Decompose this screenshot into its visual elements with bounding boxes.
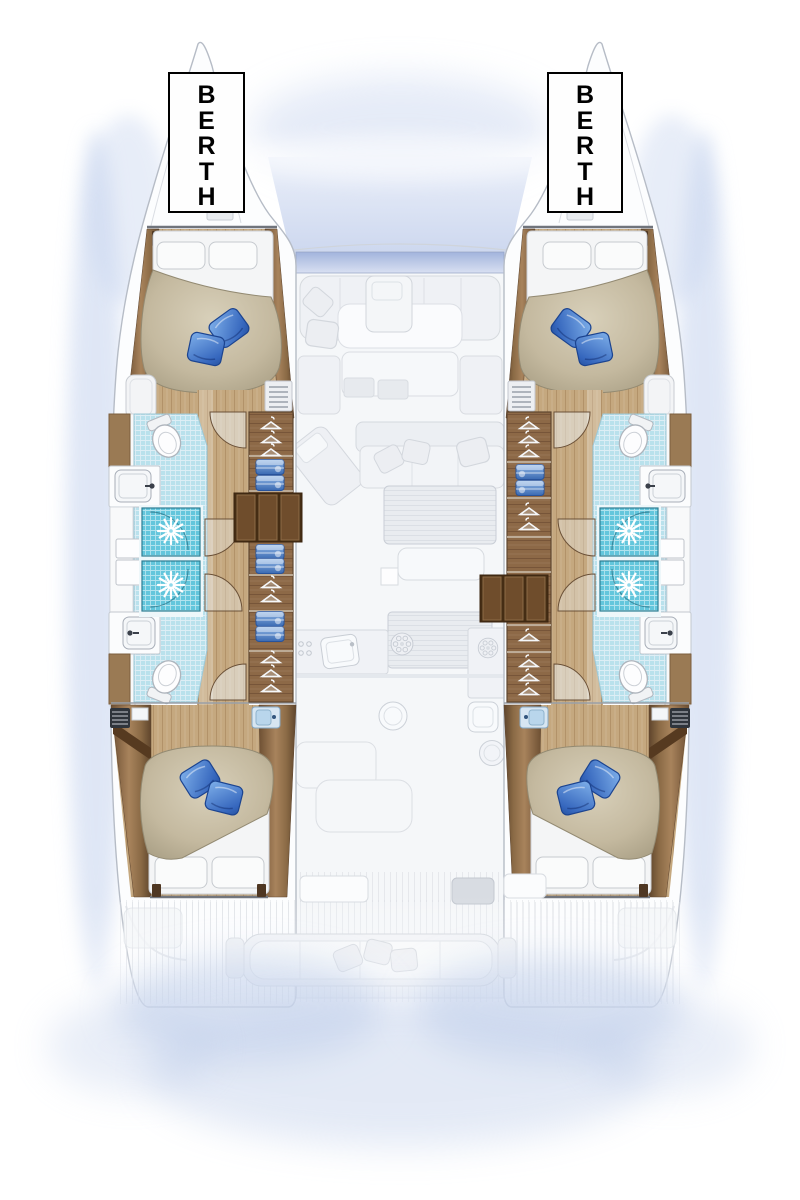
berth-label-starboard: BERTH bbox=[547, 72, 623, 213]
galley-sink-ghost bbox=[320, 634, 360, 670]
front-window bbox=[296, 252, 504, 273]
berth-label-port: BERTH bbox=[168, 72, 245, 213]
saloon-table-ghost bbox=[384, 486, 496, 544]
berth-label-starboard-text: BERTH bbox=[575, 83, 595, 211]
catamaran-floorplan: BERTH BERTH bbox=[0, 0, 800, 1200]
berth-label-port-text: BERTH bbox=[197, 83, 217, 211]
floorplan-svg bbox=[0, 0, 800, 1200]
